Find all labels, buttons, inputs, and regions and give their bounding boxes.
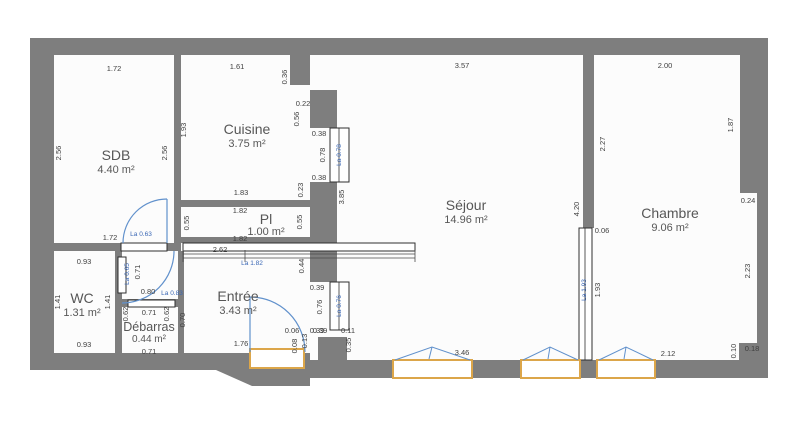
- dim-deb-top: 0.71: [142, 308, 157, 317]
- room-name-chambre: Chambre: [641, 205, 699, 221]
- dim-chambre-top: 2.00: [658, 61, 673, 70]
- sdb-door-threshold: [121, 243, 167, 251]
- dim-pl-bottom: 1.82: [233, 234, 248, 243]
- wall-right-upper: [740, 55, 768, 193]
- wall-sdb-bottom-a: [30, 243, 121, 251]
- dim-sdb-bottom: 1.72: [103, 233, 118, 242]
- dim-sejour-f: 0.35: [344, 338, 353, 353]
- dim-chambre-step: 0.24: [741, 196, 756, 205]
- dim-wc-top: 0.93: [77, 257, 92, 266]
- room-area-chambre: 9.06 m²: [651, 222, 689, 234]
- dim-cuisine-bottom: 1.83: [234, 188, 249, 197]
- dim-win2-a: 0.39: [310, 283, 325, 292]
- dim-chambre-left: 2.27: [598, 137, 607, 152]
- floor-plan-page: SDB 4.40 m² Cuisine 3.75 m² Pl 1.00 m² W…: [0, 0, 800, 437]
- dim-cuisine-left: 1.93: [179, 123, 188, 138]
- room-area-wc: 1.31 m²: [63, 307, 101, 319]
- room-name-pl: Pl: [260, 211, 272, 227]
- dim-partition-a: 0.06: [595, 226, 610, 235]
- dim-sejour-right: 4.20: [572, 202, 581, 217]
- dim-win1-c: 0.38: [312, 173, 327, 182]
- dim-win1-a: 0.38: [312, 129, 327, 138]
- window-chambre: [597, 360, 655, 378]
- dim-wc-right: 1.41: [103, 295, 112, 310]
- wall-vestibule-entree: [178, 251, 184, 360]
- dim-entree-c: 0.13: [300, 334, 309, 349]
- dim-cuisine-top: 1.61: [230, 62, 245, 71]
- dim-entree-a: 0.06: [285, 326, 300, 335]
- dim-win1-b: 0.78: [318, 148, 327, 163]
- room-area-cuisine: 3.75 m²: [228, 138, 266, 150]
- room-name-wc: WC: [70, 290, 93, 306]
- dim-win2-c: 0.39: [310, 326, 325, 335]
- dim-entree-left: 0.70: [178, 313, 187, 328]
- dim-mid-262: 2.62: [213, 245, 228, 254]
- dim-sejour-bottom: 3.46: [455, 348, 470, 357]
- dim-win2-b: 0.76: [315, 300, 324, 315]
- room-area-pl: 1.00 m²: [247, 226, 285, 238]
- floor-plan-svg: SDB 4.40 m² Cuisine 3.75 m² Pl 1.00 m² W…: [0, 0, 800, 437]
- window-sejour-1: [393, 360, 472, 378]
- dim-sdb-top: 1.72: [107, 64, 122, 73]
- dim-wc-bottom: 0.93: [77, 340, 92, 349]
- dim-partition-b: 1.93: [593, 283, 602, 298]
- room-area-sdb: 4.40 m²: [97, 164, 135, 176]
- wall-cuisine-notch: [290, 55, 310, 85]
- room-area-sejour: 14.96 m²: [444, 214, 488, 226]
- dim-vest-door-w: 0.80: [141, 287, 156, 296]
- dim-vest-door-v: 0.71: [133, 265, 142, 280]
- dim-entree-bottom: 1.76: [234, 339, 249, 348]
- dim-chambre-right2: 2.23: [743, 264, 752, 279]
- door-label-win2: La 0.76: [336, 295, 343, 317]
- door-label-sdb: La 0.63: [130, 231, 152, 238]
- room-area-debarras: 0.44 m²: [132, 334, 167, 345]
- dim-chambre-right: 1.87: [726, 118, 735, 133]
- dim-sdb-left: 2.56: [54, 146, 63, 161]
- wall-bottom-left: [30, 353, 216, 370]
- dim-cuisine-notch-c: 0.56: [292, 112, 301, 127]
- door-label-vest: La 0.65: [124, 263, 131, 285]
- room-area-entree: 3.43 m²: [219, 305, 257, 317]
- wall-left: [30, 38, 54, 370]
- dim-chambre-bottom: 2.12: [661, 349, 676, 358]
- dim-wc-left: 1.41: [53, 295, 62, 310]
- wall-sejour-chambre: [583, 55, 594, 228]
- door-label-partition: La 1.93: [581, 279, 588, 301]
- window-sejour-2: [521, 360, 580, 378]
- wall-sdb-bottom-b: [167, 243, 178, 251]
- dim-pl-top: 1.82: [233, 206, 248, 215]
- room-name-sdb: SDB: [102, 147, 131, 163]
- dim-cuisine-b2: 0.23: [296, 183, 305, 198]
- dim-sejour-top: 3.57: [455, 61, 470, 70]
- wall-sejour-corner: [318, 337, 347, 360]
- dim-deb-bottom: 0.71: [142, 347, 157, 356]
- dim-sejour-left: 3.85: [337, 190, 346, 205]
- dim-pl-right: 0.55: [295, 215, 304, 230]
- dim-sejour-e: 0.11: [341, 326, 355, 335]
- door-label-pl-opening: La 1.82: [241, 260, 263, 267]
- wall-cuisine-sejour-a: [310, 90, 337, 128]
- dim-cuisine-notch-a: 0.36: [280, 70, 289, 85]
- dim-cuisine-notch-b: 0.22: [296, 99, 311, 108]
- room-name-entree: Entrée: [217, 288, 258, 304]
- dim-pl-left: 0.55: [182, 216, 191, 231]
- wall-top: [30, 38, 768, 55]
- dim-deb-left: 0.62: [121, 307, 130, 322]
- dim-chambre-n2: 0.18: [745, 344, 760, 353]
- dim-entree-b: 0.08: [290, 339, 299, 354]
- dim-mid-v: 0.44: [297, 259, 306, 274]
- room-name-sejour: Séjour: [446, 197, 487, 213]
- door-label-debarras: La 0.83: [161, 290, 183, 297]
- door-label-win1: La 0.78: [336, 144, 343, 166]
- wall-cuisine-sejour-b: [310, 182, 337, 282]
- dim-sdb-right: 2.56: [160, 146, 169, 161]
- dim-chambre-n1: 0.10: [729, 344, 738, 359]
- wall-sdb-cuisine: [174, 55, 181, 251]
- dim-deb-right: 0.62: [162, 307, 171, 322]
- room-name-cuisine: Cuisine: [224, 121, 271, 137]
